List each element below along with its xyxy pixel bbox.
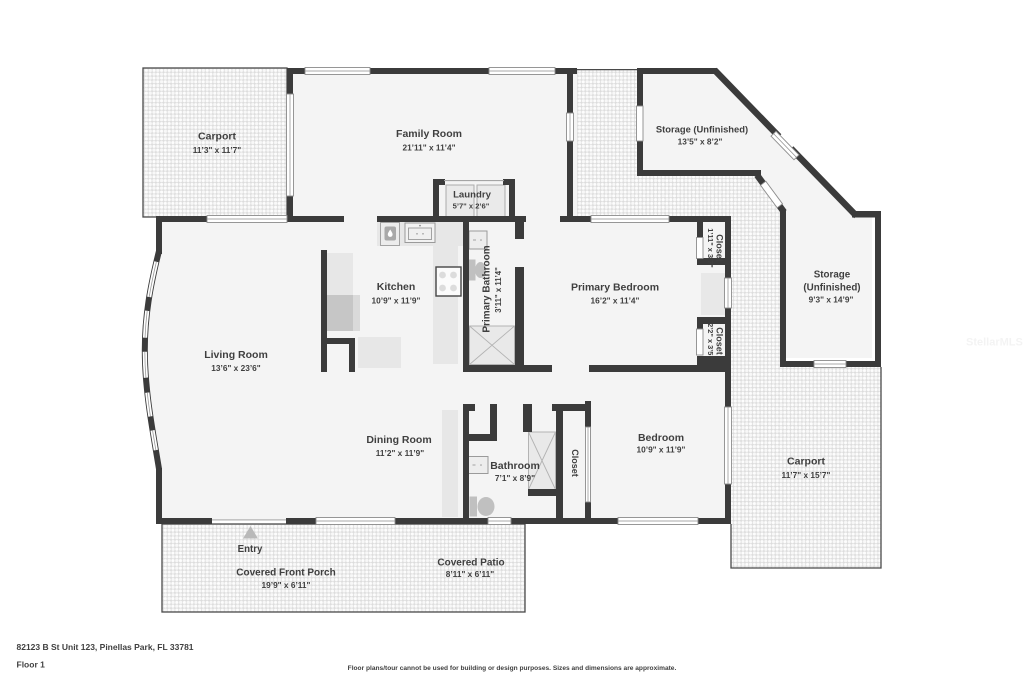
svg-text:Floor 1: Floor 1	[17, 660, 46, 670]
svg-text:10’9" x 11’9": 10’9" x 11’9"	[372, 296, 421, 306]
svg-text:Laundry: Laundry	[453, 190, 492, 201]
svg-text:Entry: Entry	[238, 544, 263, 555]
svg-text:13’5" x 8’2": 13’5" x 8’2"	[678, 137, 723, 147]
svg-text:11’7" x 15’7": 11’7" x 15’7"	[782, 470, 831, 480]
svg-text:Primary Bedroom: Primary Bedroom	[571, 282, 659, 294]
svg-text:Family Room: Family Room	[396, 128, 462, 140]
svg-text:19’9" x 6’11": 19’9" x 6’11"	[262, 580, 311, 590]
svg-text:10’9" x 11’9": 10’9" x 11’9"	[637, 445, 686, 455]
svg-text:Bedroom: Bedroom	[638, 432, 684, 444]
svg-text:Dining Room: Dining Room	[366, 434, 431, 446]
svg-text:11’3" x 11’7": 11’3" x 11’7"	[193, 145, 242, 155]
svg-text:(Unfinished): (Unfinished)	[803, 283, 860, 294]
svg-text:Floor plans/tour cannot be use: Floor plans/tour cannot be used for buil…	[348, 665, 677, 672]
svg-text:Bathroom: Bathroom	[490, 460, 540, 472]
svg-text:5’7" x 2’6": 5’7" x 2’6"	[453, 202, 490, 211]
svg-text:1’11" x 3’7": 1’11" x 3’7"	[706, 228, 715, 268]
svg-text:Storage: Storage	[814, 270, 851, 281]
svg-text:7’1" x 8’9": 7’1" x 8’9"	[495, 473, 535, 483]
svg-text:Closet: Closet	[715, 234, 725, 262]
svg-text:9’3" x 14’9": 9’3" x 14’9"	[809, 295, 854, 305]
svg-text:Primary Bathroom: Primary Bathroom	[482, 245, 493, 332]
svg-text:3’11" x 11’4": 3’11" x 11’4"	[494, 267, 503, 313]
svg-text:13’6" x 23’6": 13’6" x 23’6"	[211, 363, 260, 373]
svg-text:11’2" x 11’9": 11’2" x 11’9"	[376, 448, 425, 458]
svg-text:Closet: Closet	[570, 449, 580, 477]
svg-text:Covered Front Porch: Covered Front Porch	[236, 568, 335, 579]
svg-text:StellarMLS: StellarMLS	[966, 337, 1023, 349]
svg-text:Living Room: Living Room	[204, 349, 268, 361]
svg-text:16’2" x 11’4": 16’2" x 11’4"	[591, 296, 640, 306]
svg-text:Kitchen: Kitchen	[377, 281, 416, 293]
svg-text:Carport: Carport	[198, 131, 236, 143]
svg-text:Storage (Unfinished): Storage (Unfinished)	[656, 124, 748, 135]
svg-text:8’11" x 6’11": 8’11" x 6’11"	[446, 569, 495, 579]
svg-text:82123 B St Unit 123, Pinellas: 82123 B St Unit 123, Pinellas Park, FL 3…	[17, 642, 194, 652]
svg-text:Carport: Carport	[787, 456, 825, 468]
svg-text:2’2" x 3’5": 2’2" x 3’5"	[706, 323, 715, 359]
svg-text:21’11" x 11’4": 21’11" x 11’4"	[402, 143, 455, 153]
svg-text:Closet: Closet	[715, 327, 725, 355]
svg-text:Covered Patio: Covered Patio	[437, 558, 504, 569]
